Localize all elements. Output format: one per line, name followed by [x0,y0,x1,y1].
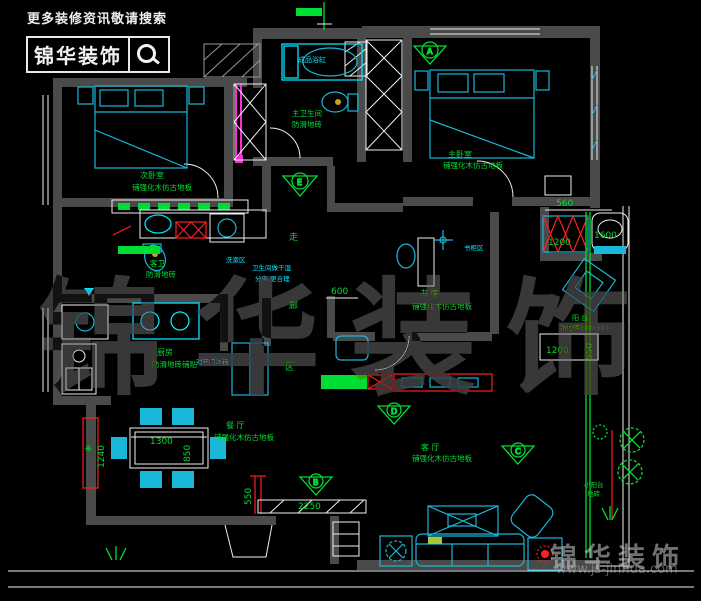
svg-text:A: A [427,47,433,56]
dim: 850 [183,445,193,462]
room-label: 小阳台 [584,480,604,489]
dining-table-icon [111,408,226,488]
search-tagline: 更多装修资讯敬请搜索 [27,8,167,27]
dim: 1240 [97,445,107,468]
marker-a-icon: A [414,42,446,64]
red-x-vanity-cabinet [113,222,206,238]
dimensions: 560 1200 1600 600 1300 850 1240 550 2250… [97,199,617,512]
note-line1: 卫生间做干湿 [252,263,292,272]
room-label: 餐 厅 [226,421,245,430]
room-label: 书 房 [420,288,439,298]
corridor-char: 廊 [289,299,298,311]
bathtub-label: 成品浴缸 [298,55,326,64]
cabinet-icon [62,344,96,394]
bed-icon [430,70,534,158]
ceiling-fan-icon [433,230,453,250]
room-floor-label: 防滑地砖 [292,119,322,129]
dim: 1200 [548,238,571,248]
bookcase-label: 书柜区 [464,243,484,252]
room-floor-label: 铺地砖300X600 [560,323,609,332]
brand-search-box: 锦华装饰 [26,36,170,73]
note-line2: 分离 更合理 [255,274,290,283]
dim: 550 [585,343,595,360]
living-furniture [380,492,562,570]
armchair-icon [508,492,555,540]
room-label: 客 厅 [421,442,440,452]
wash-area-label: 洗漱区 [226,255,246,264]
marker-e-icon: E [283,173,317,196]
fridge-label: 对开门冰箱 [196,357,229,366]
room-floor-label: 铺强化木仿古地板 [443,160,503,170]
room-floor-label: 铺强化木仿古地板 [412,301,472,311]
bedroom2-furniture [78,84,266,213]
room-floor-label: 防滑地砖铺贴 [152,359,197,369]
laundry-sink-icon [563,259,616,312]
dim: 1300 [150,437,173,447]
svg-text:✳: ✳ [84,444,92,455]
grass-icon [106,506,618,560]
top-reference-marks [296,2,332,30]
bookcase-row [321,374,492,391]
marker-d-icon: D [378,403,410,424]
room-label: 主卫生间 [292,108,322,118]
floorplan-drawing: ✳ [0,0,701,601]
svg-text:C: C [515,447,521,456]
room-label: 次卧室 [140,170,164,180]
marker-b-icon: B [300,474,332,495]
sink-icon [62,305,108,339]
desk-icon [397,238,434,286]
corridor-char: 区 [285,362,294,373]
toilet-icon [322,92,358,112]
balcony-strip [106,212,644,560]
bed-icon [95,86,187,168]
svg-text:D: D [391,407,397,416]
svg-text:B: B [313,478,319,487]
search-icon [130,41,164,69]
room-floor-label: 铺强化木仿古地板 [214,432,274,442]
closet-column-icon [366,40,402,150]
master-bath-fixtures [282,44,362,112]
room-label: 厨房 [157,347,173,357]
room-floor-label: 铺强化木仿古地板 [412,453,472,463]
dim: 560 [556,199,573,209]
brand-name: 锦华装饰 [28,40,128,69]
svg-text:E: E [297,178,302,187]
dim: 1200 [546,346,569,356]
room-label: 客卫 [150,258,165,268]
tv-cabinet-icon [428,506,498,536]
corridor-char: 走 [289,232,298,243]
plant-icon [593,425,644,484]
guest-bath-fixtures [84,210,266,296]
wardrobe-icon [234,84,266,160]
room-floor-label: 铺强化木仿古地板 [132,182,192,192]
room-label: 阳 台 [572,313,588,322]
fridge-icon [232,343,268,395]
floorplan-screenshot: ✳ [0,0,701,601]
marker-c-icon: C [502,443,534,464]
dim: 1600 [594,231,617,241]
room-label: 主卧室 [448,149,472,159]
room-floor-label: 地砖 [587,489,601,498]
corner-watermark-url: www.js-jinhua.com [556,562,678,577]
stove-icon [133,303,199,339]
dim: 2250 [298,502,321,512]
room-floor-label: 防滑地砖 [146,269,176,279]
dim: 550 [244,488,254,505]
dim: 600 [331,287,348,297]
